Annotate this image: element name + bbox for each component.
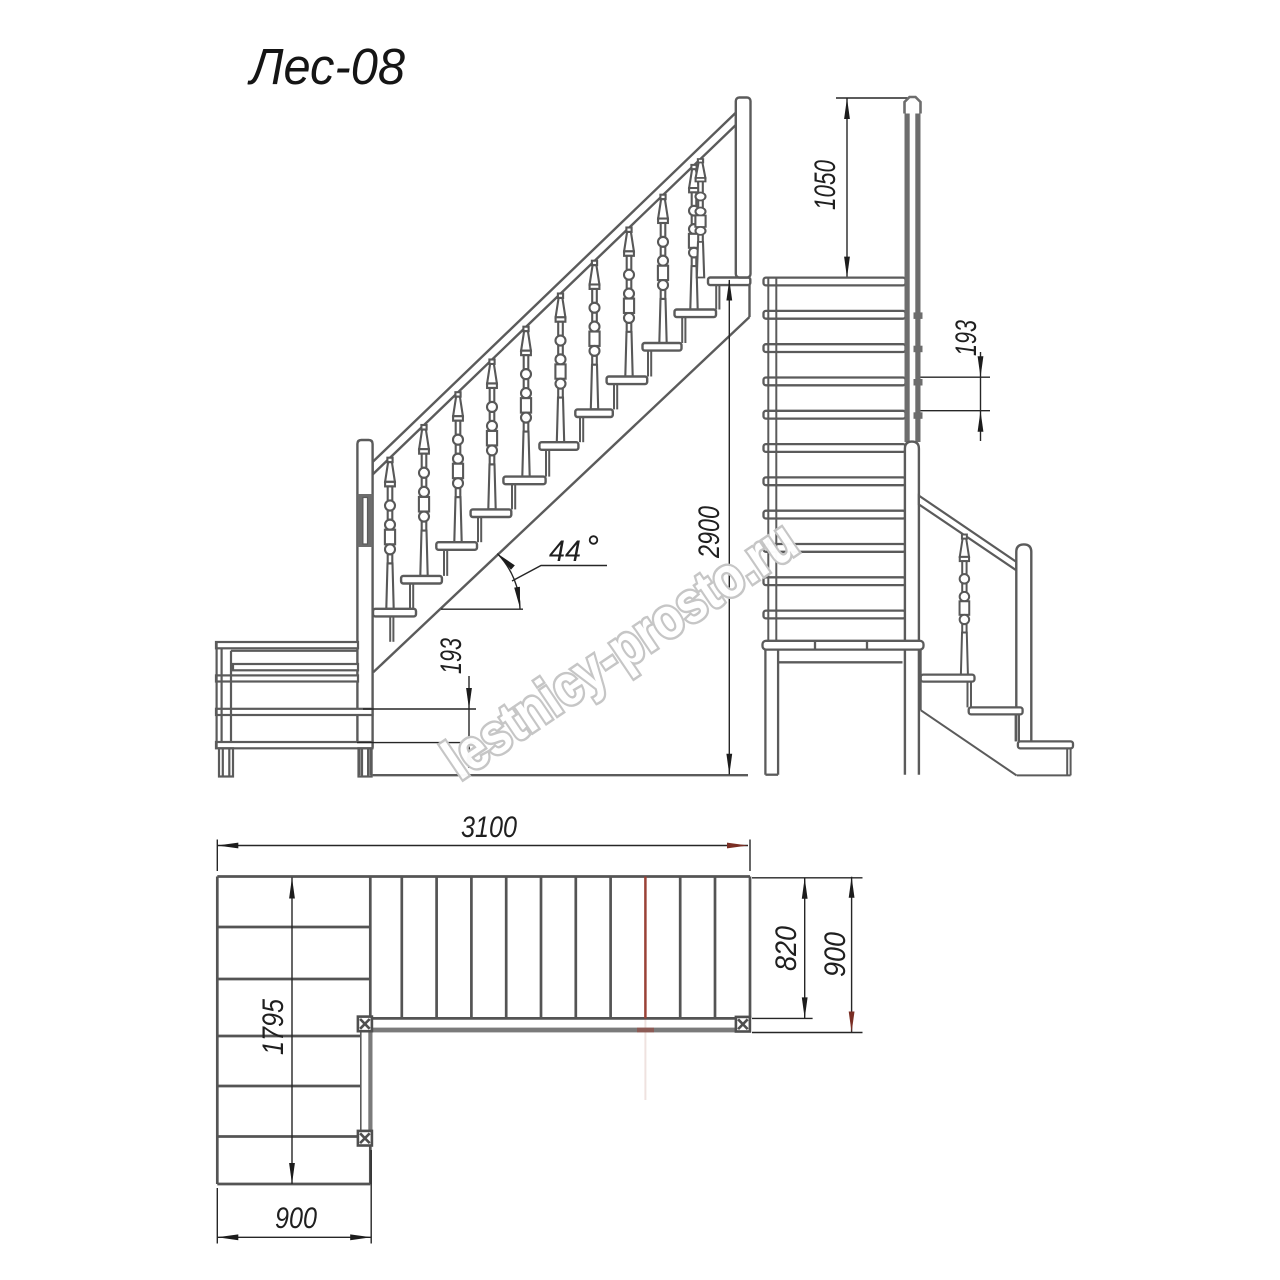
svg-text:900: 900: [275, 1202, 317, 1235]
svg-text:820: 820: [770, 926, 803, 971]
svg-text:1050: 1050: [809, 160, 842, 210]
svg-text:193: 193: [435, 638, 468, 674]
svg-text:44: 44: [549, 535, 581, 568]
svg-text:193: 193: [950, 320, 983, 356]
svg-text:1795: 1795: [257, 999, 290, 1055]
svg-text:Лес-08: Лес-08: [247, 38, 405, 95]
svg-text:900: 900: [819, 932, 852, 977]
svg-text:3100: 3100: [461, 811, 517, 844]
